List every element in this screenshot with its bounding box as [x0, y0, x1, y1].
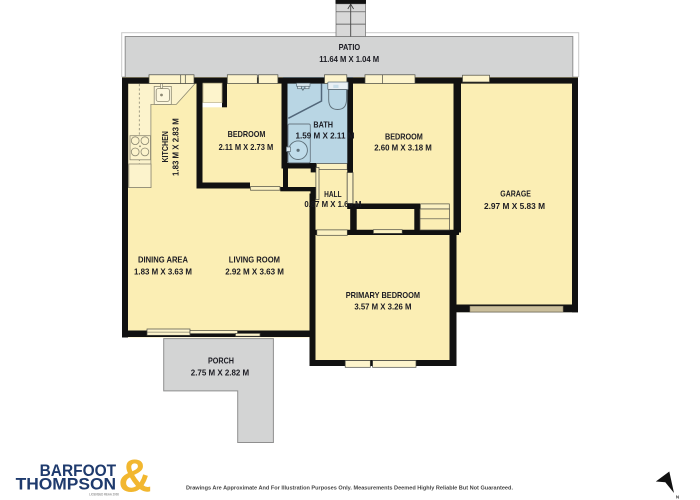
svg-text:2.11 M X 2.73 M: 2.11 M X 2.73 M: [219, 142, 274, 152]
svg-text:BEDROOM: BEDROOM: [385, 132, 423, 142]
svg-text:2.60 M X 3.18 M: 2.60 M X 3.18 M: [374, 142, 432, 152]
svg-text:Drawings Are Approximate And F: Drawings Are Approximate And For Illustr…: [186, 486, 513, 492]
svg-text:1.59 M X 2.11 M: 1.59 M X 2.11 M: [296, 131, 355, 141]
svg-text:KITCHEN: KITCHEN: [160, 131, 170, 163]
svg-text:BEDROOM: BEDROOM: [228, 129, 266, 139]
svg-text:1.83 M X 3.63 M: 1.83 M X 3.63 M: [134, 266, 192, 276]
svg-text:2.92 M X 3.63 M: 2.92 M X 3.63 M: [225, 266, 284, 276]
svg-text:3.57 M X 3.26 M: 3.57 M X 3.26 M: [354, 301, 411, 311]
svg-text:BATH: BATH: [313, 119, 333, 129]
svg-text:THOMPSON: THOMPSON: [16, 474, 117, 493]
svg-text:HALL: HALL: [324, 189, 342, 199]
svg-text:LICENSED REAA 2008: LICENSED REAA 2008: [89, 492, 119, 496]
svg-text:2.97 M X 5.83 M: 2.97 M X 5.83 M: [484, 201, 545, 211]
svg-text:LIVING ROOM: LIVING ROOM: [229, 254, 280, 264]
svg-text:N: N: [676, 495, 679, 500]
svg-text:PORCH: PORCH: [208, 355, 234, 365]
svg-text:GARAGE: GARAGE: [500, 188, 531, 198]
svg-text:11.64 M X 1.04 M: 11.64 M X 1.04 M: [319, 54, 379, 64]
svg-text:DINING AREA: DINING AREA: [138, 254, 188, 264]
svg-text:&: &: [118, 450, 151, 500]
svg-text:1.83 M X 2.83 M: 1.83 M X 2.83 M: [171, 118, 181, 176]
svg-text:PRIMARY BEDROOM: PRIMARY BEDROOM: [346, 290, 420, 300]
svg-text:2.75 M X 2.82 M: 2.75 M X 2.82 M: [191, 367, 249, 377]
svg-text:PATIO: PATIO: [339, 42, 361, 52]
